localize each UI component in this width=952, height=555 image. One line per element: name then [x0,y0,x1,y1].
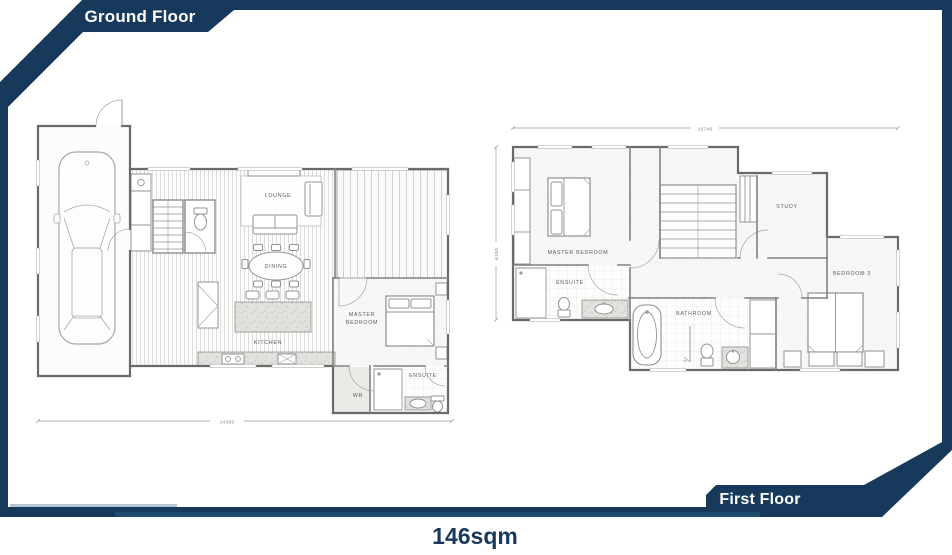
room-label-master: MASTER BEDROOM [548,250,609,256]
room-label-lounge: LOUNGE [265,193,292,199]
nightstand [865,351,884,367]
dimension-label: 10740 [698,127,713,133]
tv-unit [248,170,300,176]
room-label-wr: WR [353,393,363,399]
front-door [96,100,122,126]
lounge-area [241,170,322,234]
room-label-kitchen: KITCHEN [254,340,282,346]
toilet-icon [701,344,713,366]
hall-cabinets [131,174,151,251]
dimension-label: 14300 [220,420,235,426]
room-label-master-1: MASTER [349,312,375,318]
bed-foot-unit [809,352,834,366]
ground-floor-plan: 14300 LOUNGE DINING KITCHEN MASTER BEDRO… [36,100,454,426]
banner-first-floor: First Floor [719,491,800,508]
first-dimension-height: 6150 [492,145,501,322]
area-label: 146sqm [432,523,518,549]
vanity-icon [722,347,748,368]
linen-closet [750,300,776,368]
toilet-icon [431,396,444,412]
sofa-icon [253,215,297,234]
bed-icon [548,178,590,236]
dimension-label: 6150 [494,248,500,260]
island-stools [246,291,299,299]
room-label-ensuite: ENSUITE [409,373,437,379]
first-floor-plan: 10740 6150 MASTER BEDROOM ENSUITE STUDY … [492,124,901,372]
bed-icon [386,296,434,346]
wardrobe [514,158,530,264]
bed-icon [808,293,863,352]
sink-icon [278,354,296,364]
kitchen-bench [198,352,335,366]
wc-room [185,200,215,253]
kitchen-island [235,302,311,332]
armchair-icon [305,182,322,216]
deck-floor [337,170,448,278]
room-label-bathroom: BATHROOM [676,311,712,317]
room-label-dining: DINING [265,264,288,270]
room-label-bedroom3: BEDROOM 3 [833,271,871,277]
vanity-icon [582,300,628,318]
floorplan-canvas: 14300 LOUNGE DINING KITCHEN MASTER BEDRO… [0,0,952,555]
stairs-icon [153,200,183,253]
nightstand [436,347,447,359]
closet [740,176,757,222]
room-label-master-2: BEDROOM [346,320,378,326]
room-label-study: STUDY [776,204,797,210]
car-icon [54,152,120,344]
frame-accent-light [10,504,177,507]
banner-ground-floor: Ground Floor [85,7,196,26]
first-dimension-width: 10740 [511,124,900,133]
toilet-icon [558,298,570,318]
toilet-icon [194,208,207,230]
bathtub-icon [633,305,661,365]
shower-icon [516,268,546,318]
wr-floor [334,367,370,413]
frame-accent-mid [115,512,760,517]
ground-dimension-width: 14300 [36,417,454,426]
room-label-ensuite: ENSUITE [556,280,584,286]
shower-icon [374,369,402,410]
stairs-icon [660,185,736,258]
vanity-icon [405,397,431,410]
bed-foot-unit [837,352,862,366]
floorplan-page: 14300 LOUNGE DINING KITCHEN MASTER BEDRO… [0,0,952,555]
pantry-corner [198,282,218,328]
cooktop-icon [222,354,244,364]
nightstand [436,283,447,295]
nightstand [784,351,801,367]
